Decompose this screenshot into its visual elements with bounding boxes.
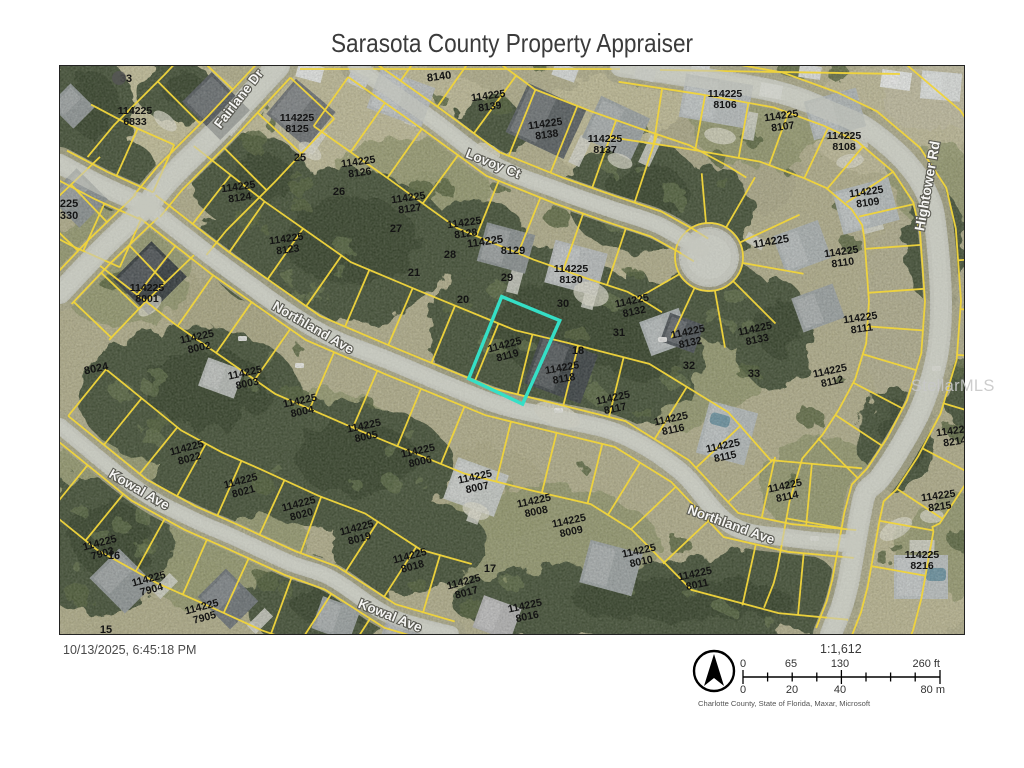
svg-text:20: 20 xyxy=(457,294,469,306)
svg-text:31: 31 xyxy=(613,327,625,339)
svg-text:40: 40 xyxy=(834,684,846,696)
svg-text:80 m: 80 m xyxy=(921,684,945,696)
svg-text:16: 16 xyxy=(108,550,120,562)
svg-text:0: 0 xyxy=(740,684,746,696)
svg-text:20: 20 xyxy=(786,684,798,696)
svg-text:130: 130 xyxy=(831,658,849,670)
svg-text:26: 26 xyxy=(333,186,345,198)
svg-text:28: 28 xyxy=(444,249,456,261)
svg-text:65: 65 xyxy=(785,658,797,670)
svg-text:30: 30 xyxy=(557,298,569,310)
svg-text:8129: 8129 xyxy=(501,245,525,257)
svg-text:33: 33 xyxy=(748,368,760,380)
svg-text:25: 25 xyxy=(294,152,306,164)
svg-text:18: 18 xyxy=(572,345,584,357)
svg-text:330: 330 xyxy=(60,210,78,222)
svg-text:32: 32 xyxy=(683,360,695,372)
svg-text:15: 15 xyxy=(100,624,112,634)
svg-text:21: 21 xyxy=(408,267,420,279)
svg-text:27: 27 xyxy=(390,223,402,235)
svg-text:17: 17 xyxy=(484,563,496,575)
svg-text:29: 29 xyxy=(501,272,513,284)
svg-text:225: 225 xyxy=(60,198,78,210)
svg-text:0: 0 xyxy=(740,658,746,670)
svg-text:260 ft: 260 ft xyxy=(912,658,940,670)
